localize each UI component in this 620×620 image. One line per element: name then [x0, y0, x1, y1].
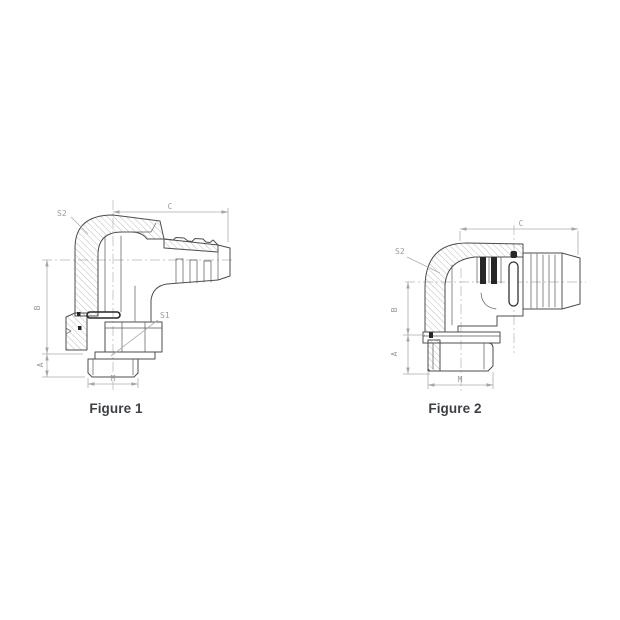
fig1-hex-nut [105, 322, 162, 352]
fig2-hose-barb [523, 253, 580, 309]
fig2-collar [477, 251, 518, 306]
figure-1-drawing: S2 C B A M S1 [25, 192, 250, 407]
fig1-stud [88, 352, 155, 377]
figure-2-caption: Figure 2 [399, 401, 511, 416]
fig1-label-s1: S1 [160, 311, 170, 320]
drawing-canvas: S2 C B A M S1 [0, 0, 620, 620]
fig1-label-a: A [36, 362, 45, 367]
fig1-label-s2: S2 [57, 209, 67, 218]
fig2-label-m: M [458, 375, 463, 384]
fig2-label-b: B [390, 307, 399, 312]
figure-1-caption: Figure 1 [60, 401, 172, 416]
fig1-label-c: C [168, 202, 173, 211]
fig2-label-s2: S2 [395, 247, 405, 256]
fig1-elbow-body [66, 215, 218, 350]
fig2-label-a: A [390, 351, 399, 356]
fig1-label-b: B [33, 305, 42, 310]
fig2-elbow-body [425, 243, 523, 371]
fig1-label-m: M [111, 374, 116, 383]
fig2-label-c: C [519, 219, 524, 228]
figure-2-drawing: S2 C B A M [385, 213, 595, 413]
